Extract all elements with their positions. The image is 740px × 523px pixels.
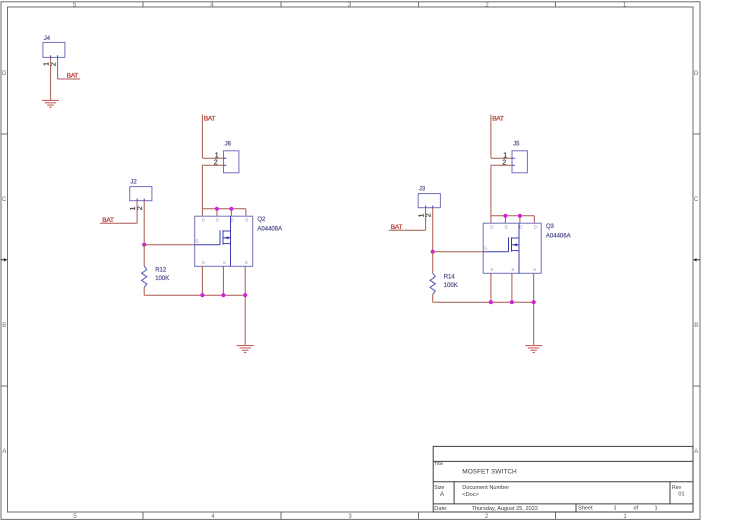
svg-text:G: G [196, 239, 199, 244]
svg-text:C: C [2, 197, 7, 203]
svg-text:A04406A: A04406A [257, 227, 282, 233]
svg-text:1: 1 [503, 152, 507, 159]
svg-text:A: A [2, 449, 6, 455]
svg-text:2: 2 [50, 62, 57, 66]
svg-text:R12: R12 [155, 267, 167, 273]
svg-text:of: of [634, 506, 639, 512]
svg-text:1: 1 [130, 206, 137, 210]
svg-text:1: 1 [419, 213, 426, 217]
svg-text:A: A [440, 492, 444, 498]
svg-text:100K: 100K [444, 283, 458, 289]
svg-text:Size: Size [434, 485, 444, 491]
svg-text:D: D [231, 217, 234, 222]
svg-text:D: D [490, 224, 493, 229]
svg-text:BAT: BAT [67, 72, 79, 79]
svg-text:C: C [694, 197, 699, 203]
svg-text:D: D [534, 224, 537, 229]
svg-text:1: 1 [215, 152, 219, 159]
svg-text:Sheet: Sheet [578, 506, 593, 512]
svg-text:A: A [694, 449, 698, 455]
svg-text:J5: J5 [513, 141, 520, 147]
svg-text:S: S [490, 267, 493, 272]
svg-text:BAT: BAT [102, 217, 114, 224]
svg-text:R14: R14 [444, 274, 456, 280]
svg-text:S: S [533, 267, 536, 272]
svg-text:2: 2 [137, 206, 144, 210]
svg-text:01: 01 [678, 492, 684, 498]
svg-text:B: B [694, 323, 698, 329]
svg-text:1: 1 [655, 506, 658, 512]
svg-text:D: D [519, 224, 522, 229]
svg-text:S: S [223, 260, 226, 265]
svg-text:J3: J3 [419, 186, 426, 192]
svg-text:S: S [202, 260, 205, 265]
svg-text:S: S [245, 260, 248, 265]
svg-text:J2: J2 [130, 179, 137, 185]
svg-text:1: 1 [614, 506, 617, 512]
svg-text:S: S [511, 267, 514, 272]
svg-text:D: D [694, 71, 699, 77]
svg-text:Document Number: Document Number [462, 485, 509, 491]
svg-text:BAT: BAT [492, 116, 504, 123]
svg-text:2: 2 [426, 213, 433, 217]
svg-text:Rev: Rev [672, 485, 682, 491]
svg-text:2: 2 [214, 160, 218, 167]
svg-text:Thursday, August 25, 2022: Thursday, August 25, 2022 [472, 506, 538, 512]
svg-text:D: D [2, 71, 7, 77]
svg-text:<Doc>: <Doc> [462, 492, 478, 498]
svg-text:D: D [505, 224, 508, 229]
svg-text:J4: J4 [44, 36, 51, 42]
svg-text:2: 2 [502, 160, 506, 167]
svg-text:100K: 100K [155, 276, 169, 282]
svg-text:G: G [484, 246, 487, 251]
svg-text:D: D [202, 217, 205, 222]
svg-text:Title: Title [434, 461, 443, 467]
svg-text:BAT: BAT [204, 116, 216, 123]
svg-text:BAT: BAT [391, 224, 403, 231]
svg-text:D: D [216, 217, 219, 222]
svg-text:Q2: Q2 [257, 217, 266, 223]
svg-text:J6: J6 [225, 141, 232, 147]
svg-text:Q3: Q3 [546, 224, 555, 230]
svg-text:Date:: Date: [434, 506, 448, 512]
svg-text:MOSFET SWITCH: MOSFET SWITCH [462, 468, 517, 475]
svg-text:A04406A: A04406A [546, 234, 571, 240]
svg-text:D: D [245, 217, 248, 222]
svg-text:B: B [2, 323, 6, 329]
